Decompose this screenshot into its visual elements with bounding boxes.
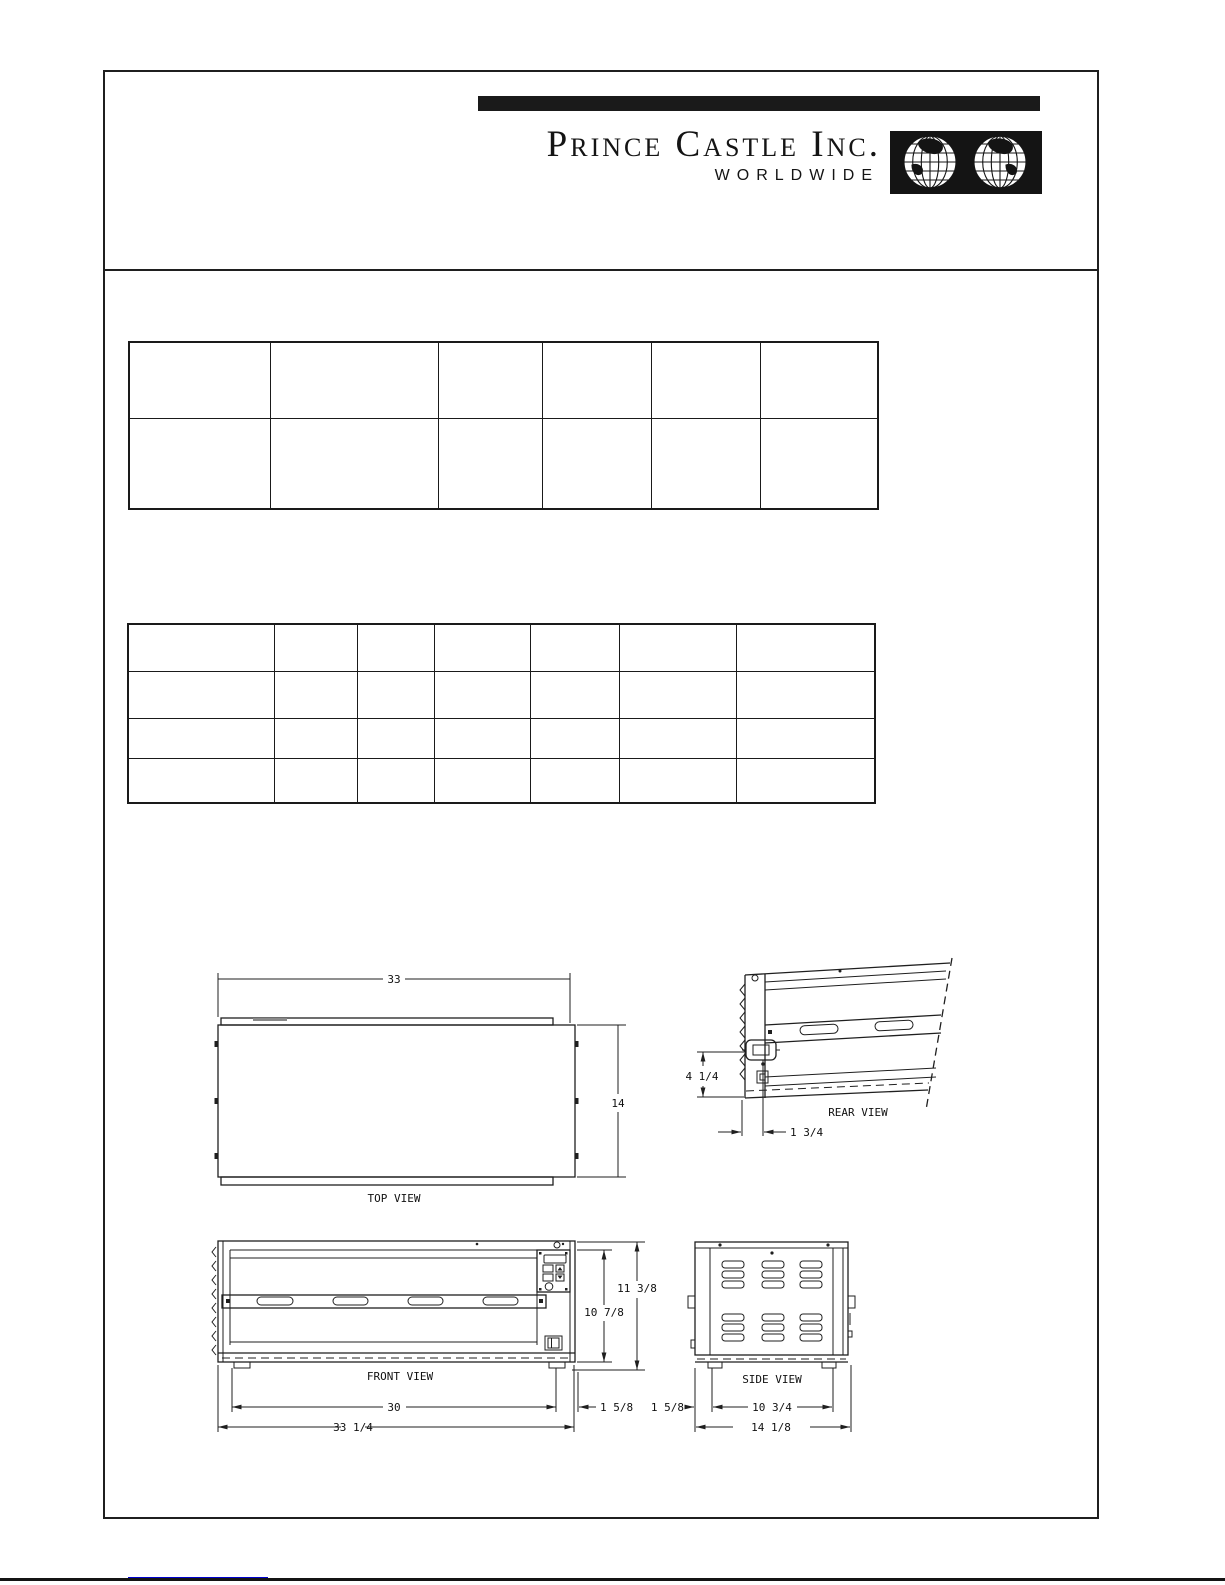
front-view-drawing: 10 7/8 11 3/8 FRONT VIEW 30 33 1/4 1 5/8 xyxy=(212,1241,657,1434)
rear-outlet-height-dim: 4 1/4 xyxy=(685,1070,718,1083)
foot xyxy=(822,1362,836,1368)
side-view-label: SIDE VIEW xyxy=(742,1373,802,1386)
rear-mount-bar xyxy=(765,1015,941,1043)
power-switch-icon[interactable] xyxy=(545,1336,562,1350)
side-handle-tab xyxy=(688,1296,695,1308)
page-bottom-rule xyxy=(0,1578,1225,1581)
rear-view-drawing: 4 1/4 1 3/4 REAR VIEW xyxy=(685,958,952,1139)
timer-button[interactable] xyxy=(543,1265,553,1272)
element-slot xyxy=(408,1297,443,1305)
control-panel xyxy=(537,1250,570,1292)
spec-sheet-page: Prince Castle Inc. WORLDWIDE xyxy=(0,0,1225,1585)
side-view-drawing: SIDE VIEW 1 5/8 10 3/4 14 1/8 xyxy=(651,1242,855,1434)
side-overall-depth-dim: 14 1/8 xyxy=(751,1421,791,1434)
top-view-rear-lip xyxy=(221,1177,553,1185)
pilot-light-icon xyxy=(554,1242,560,1248)
element-slot xyxy=(333,1297,368,1305)
technical-drawings: 33 14 TOP VIEW xyxy=(0,0,1225,1585)
power-knob[interactable] xyxy=(545,1283,553,1291)
top-view-depth-dim: 14 xyxy=(611,1097,625,1110)
side-foot-span-dim: 10 3/4 xyxy=(752,1401,792,1414)
foot xyxy=(549,1362,565,1368)
front-inner-width-dim: 30 xyxy=(387,1401,400,1414)
element-slot xyxy=(257,1297,293,1305)
vent-louvers xyxy=(722,1261,822,1341)
front-view-label: FRONT VIEW xyxy=(367,1370,434,1383)
top-view-width-dim: 33 xyxy=(387,973,400,986)
side-handle-tab xyxy=(848,1296,855,1308)
front-overall-width-dim: 33 1/4 xyxy=(333,1421,373,1434)
heating-element-bar xyxy=(222,1295,546,1308)
top-view-body xyxy=(218,1025,575,1177)
front-overall-height-dim: 11 3/8 xyxy=(617,1282,657,1295)
top-view-drawing: 33 14 TOP VIEW xyxy=(216,973,626,1205)
timer-button[interactable] xyxy=(543,1274,553,1281)
rear-outlet-offset-dim: 1 3/4 xyxy=(790,1126,823,1139)
foot xyxy=(234,1362,250,1368)
side-view-body xyxy=(695,1242,848,1355)
front-body-height-dim: 10 7/8 xyxy=(584,1306,624,1319)
display-window xyxy=(544,1255,566,1263)
front-right-inset-dim: 1 5/8 xyxy=(600,1401,633,1414)
element-slot xyxy=(483,1297,518,1305)
side-left-inset-dim: 1 5/8 xyxy=(651,1401,684,1414)
front-view-body xyxy=(218,1241,575,1362)
rear-view-label: REAR VIEW xyxy=(828,1106,888,1119)
screw-icon xyxy=(752,975,758,981)
top-view-label: TOP VIEW xyxy=(368,1192,421,1205)
foot xyxy=(708,1362,722,1368)
